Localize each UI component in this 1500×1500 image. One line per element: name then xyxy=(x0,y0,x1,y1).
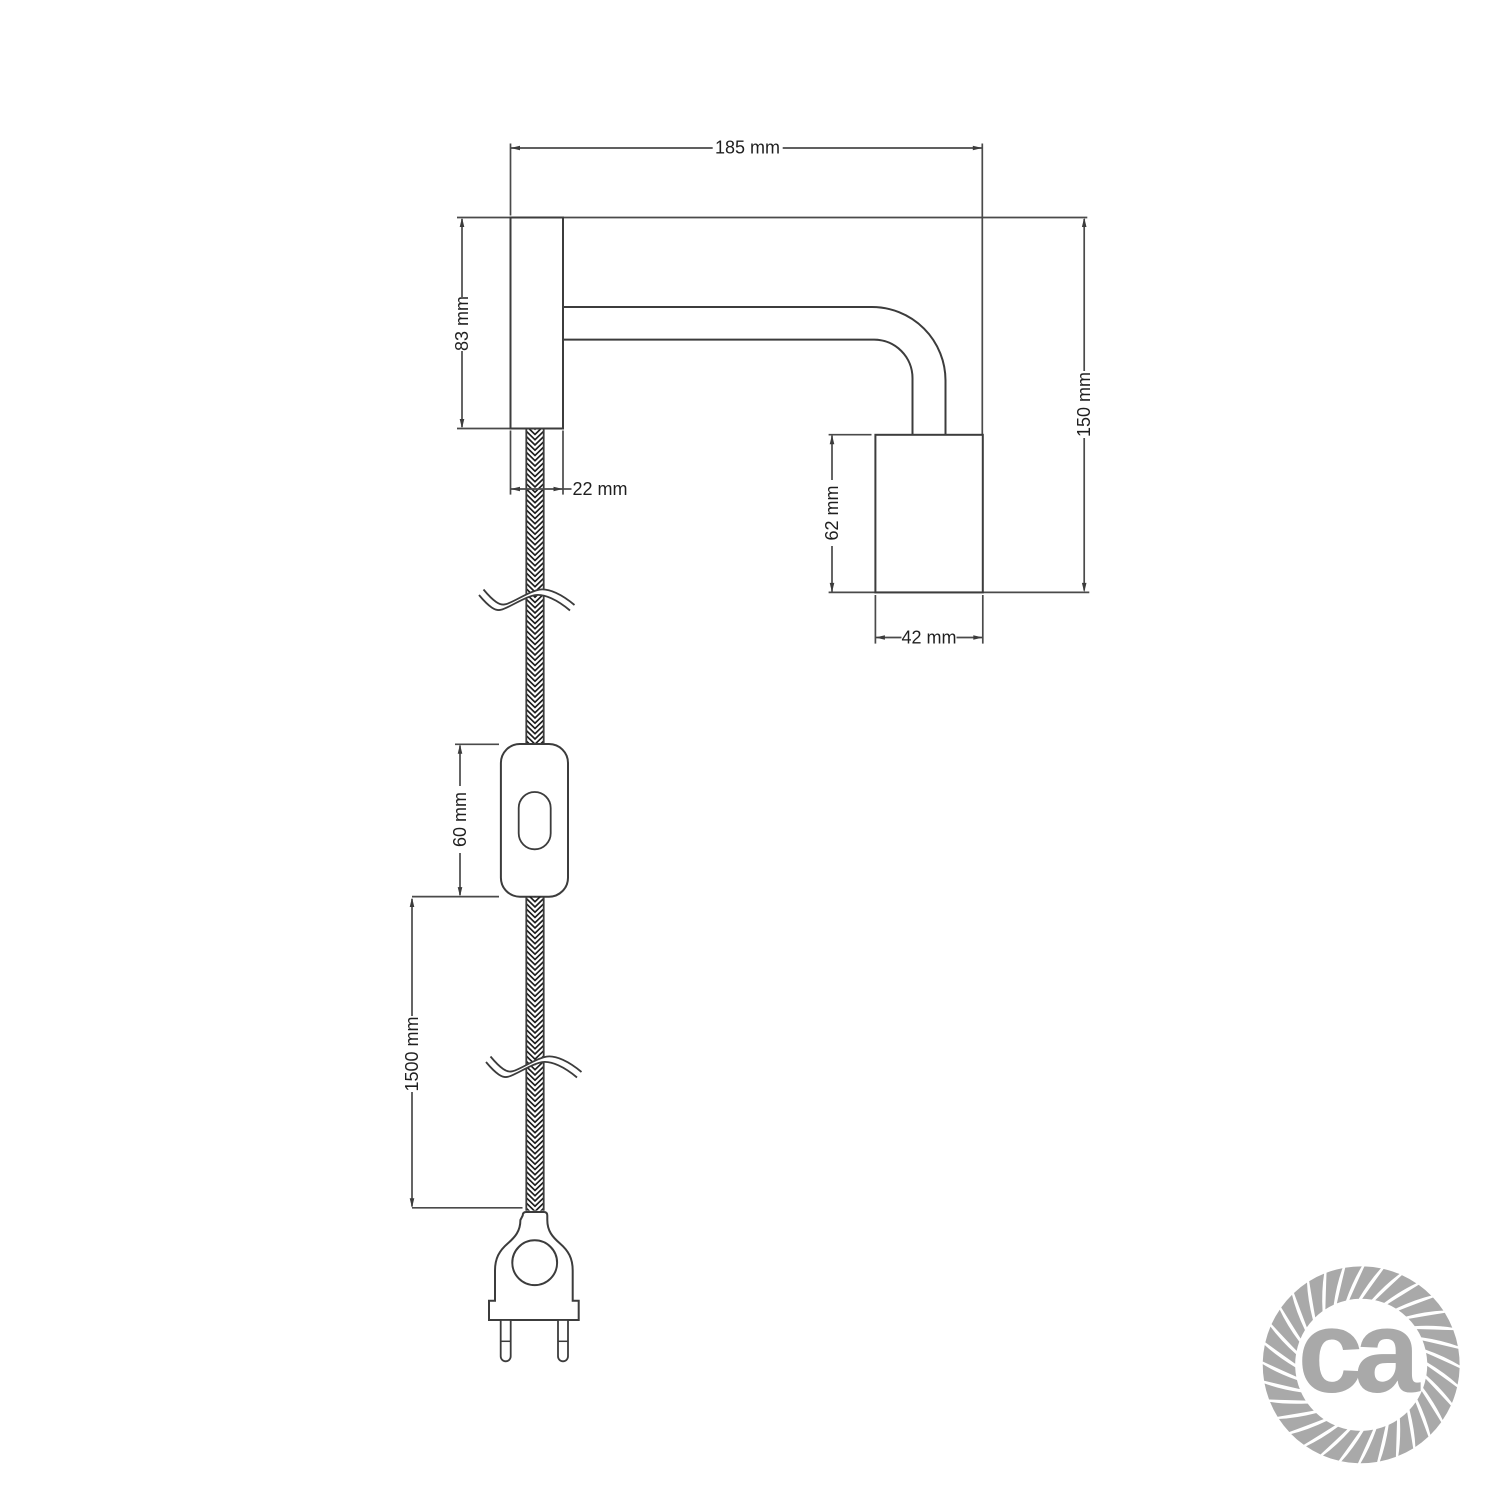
svg-text:62 mm: 62 mm xyxy=(822,485,842,540)
svg-text:42 mm: 42 mm xyxy=(901,628,956,648)
svg-text:1500 mm: 1500 mm xyxy=(402,1016,422,1091)
svg-text:60 mm: 60 mm xyxy=(450,792,470,847)
svg-text:185 mm: 185 mm xyxy=(715,138,780,158)
svg-text:22 mm: 22 mm xyxy=(573,479,628,499)
svg-text:150 mm: 150 mm xyxy=(1074,372,1094,437)
svg-text:83 mm: 83 mm xyxy=(452,296,472,351)
svg-text:ca: ca xyxy=(1298,1286,1422,1418)
